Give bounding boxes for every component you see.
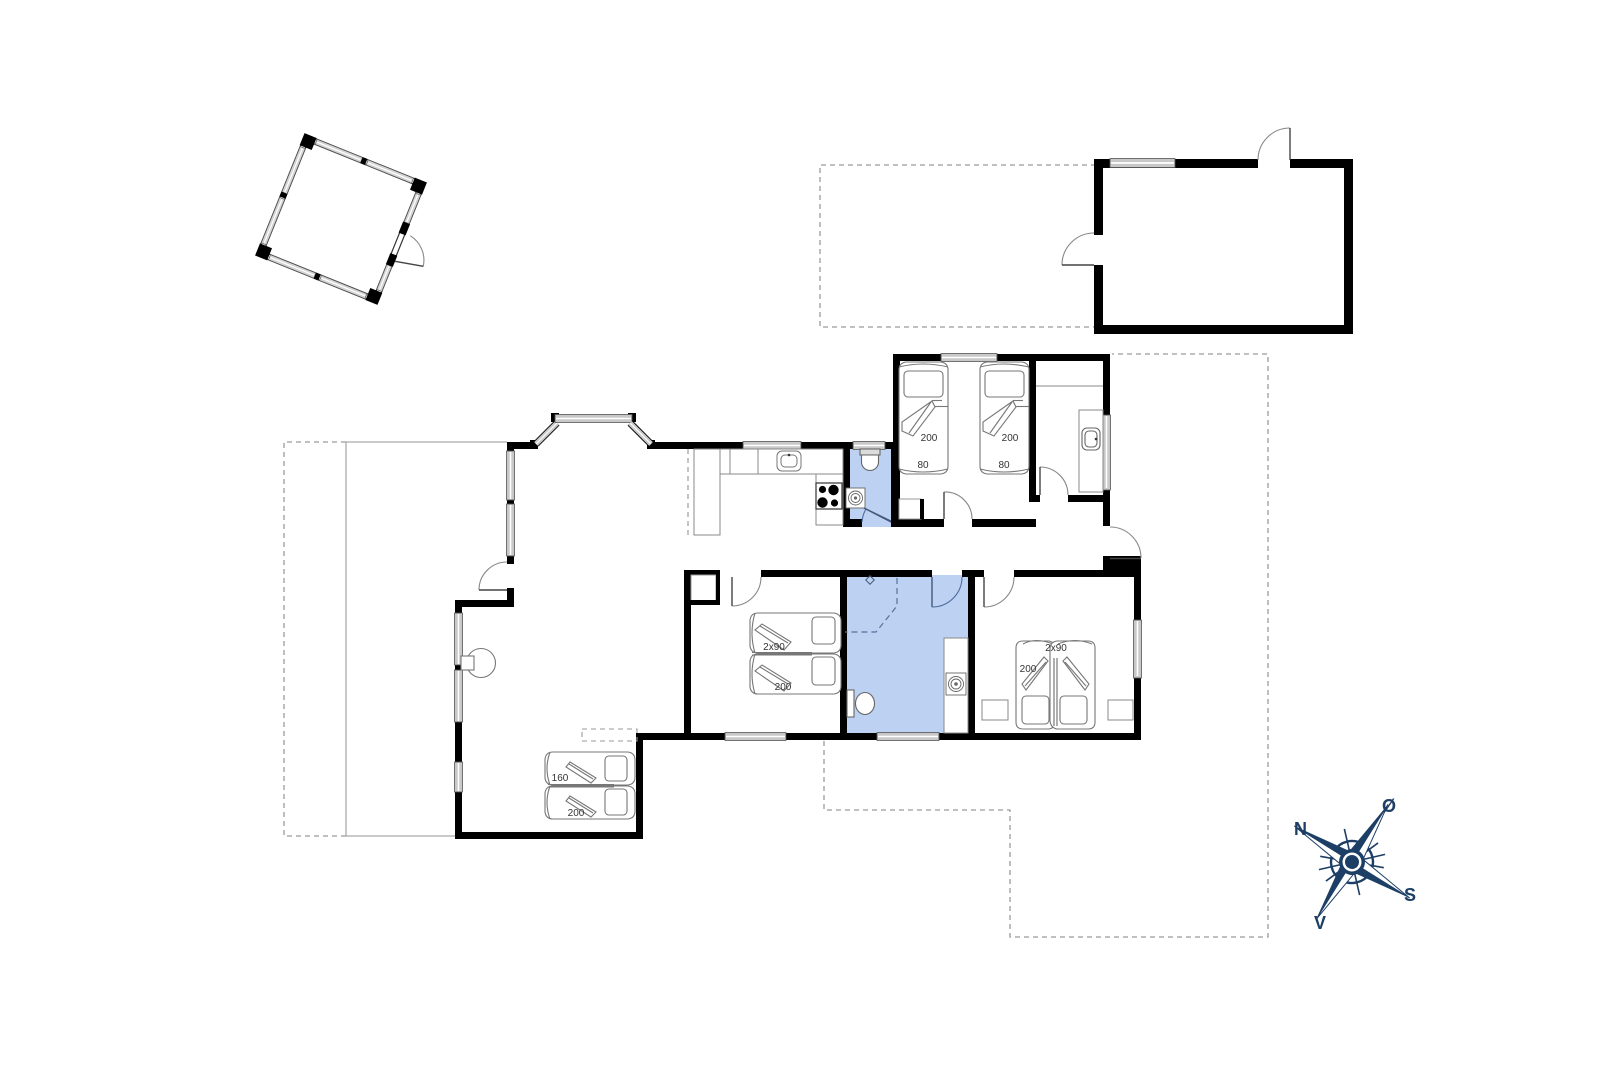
svg-text:200: 200: [1020, 664, 1037, 675]
svg-text:200: 200: [921, 433, 938, 444]
svg-text:2x90: 2x90: [1045, 643, 1067, 654]
svg-text:200: 200: [775, 682, 792, 693]
svg-text:200: 200: [568, 808, 585, 819]
svg-text:2x90: 2x90: [763, 642, 785, 653]
svg-text:80: 80: [917, 460, 929, 471]
svg-text:200: 200: [1002, 433, 1019, 444]
svg-text:Ø: Ø: [1382, 796, 1396, 816]
svg-text:V: V: [1314, 913, 1326, 933]
svg-text:80: 80: [998, 460, 1010, 471]
svg-text:N: N: [1294, 819, 1307, 839]
svg-text:S: S: [1404, 885, 1416, 905]
svg-text:160: 160: [552, 773, 569, 784]
